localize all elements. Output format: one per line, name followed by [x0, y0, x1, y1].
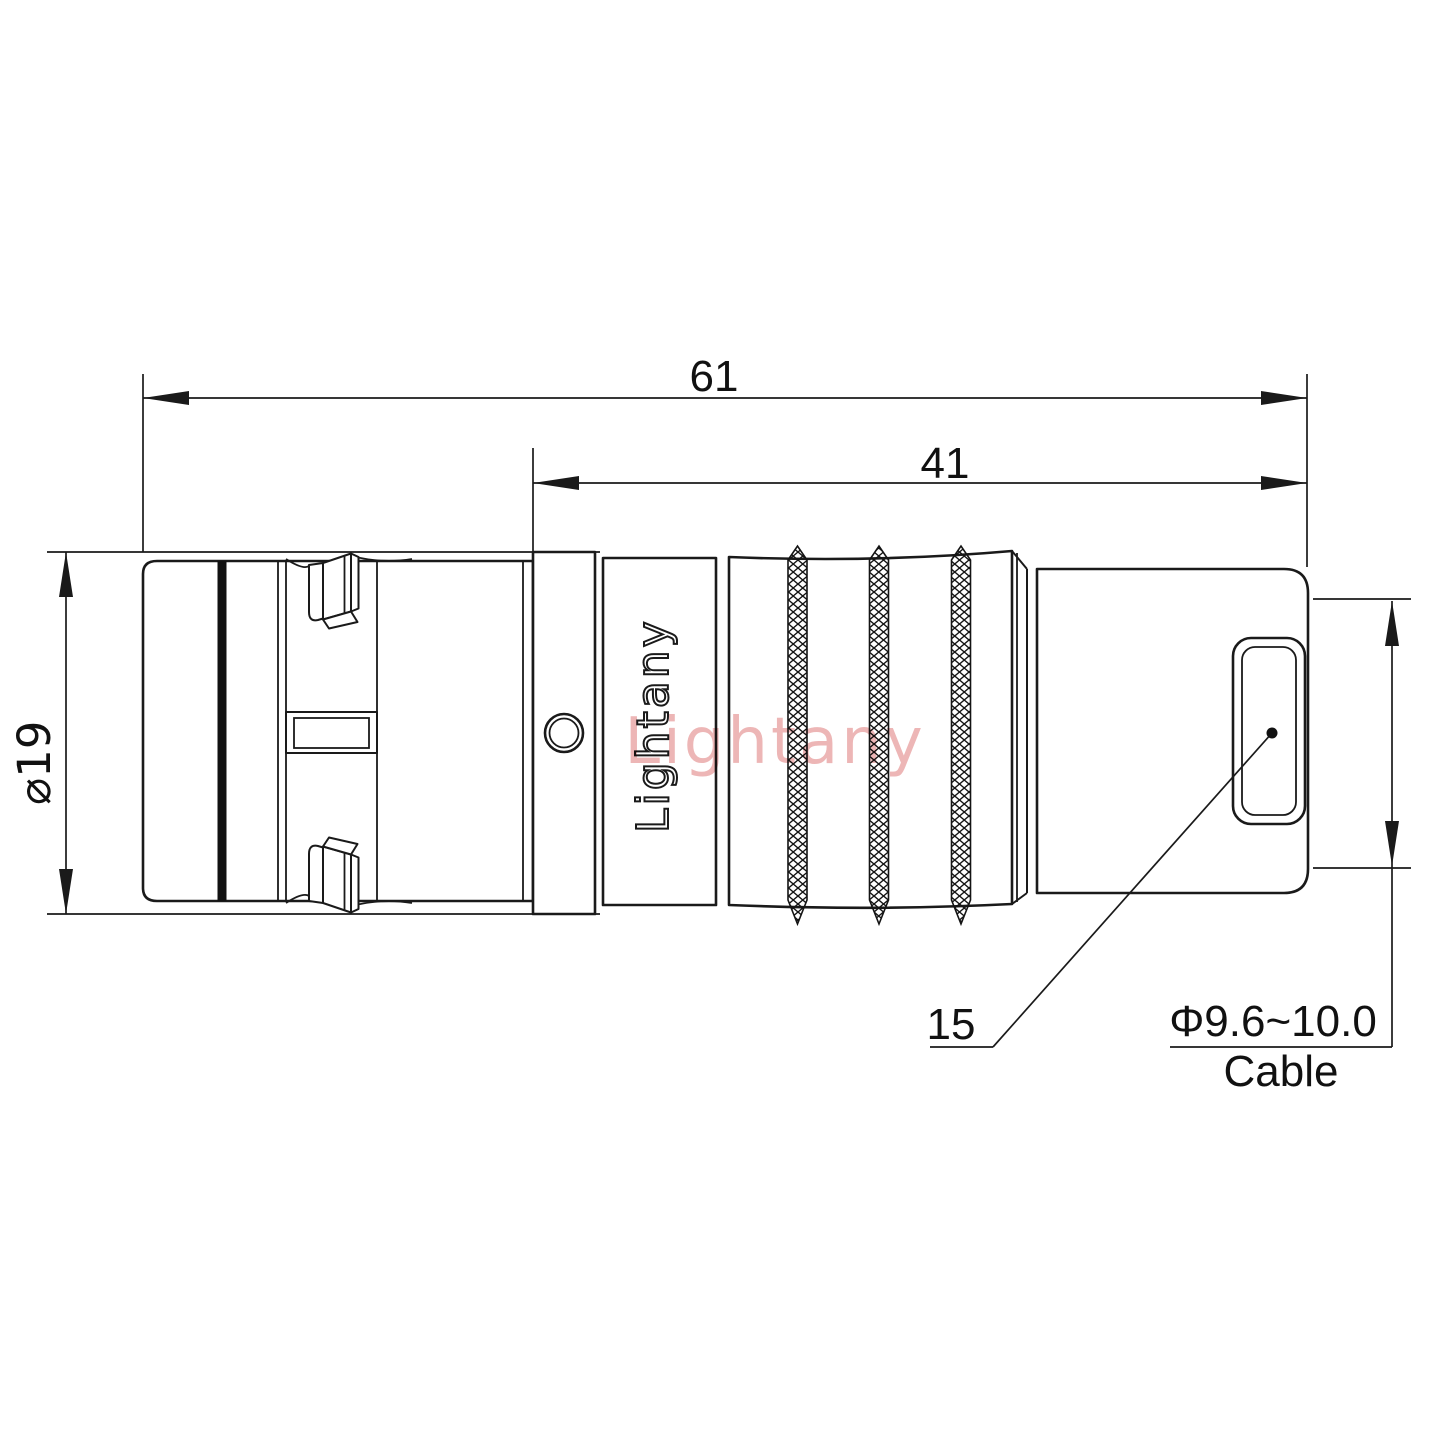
extension-lines-61 — [143, 374, 1307, 567]
latch-claw-top — [309, 554, 359, 629]
locating-hole — [545, 714, 583, 752]
arrowhead-top — [59, 552, 73, 597]
dimension-value-41: 41 — [921, 439, 970, 488]
arrowhead-right — [1261, 391, 1307, 405]
leader-value-15: 15 — [927, 1000, 976, 1049]
boot-shoulder — [1012, 551, 1027, 904]
arrowhead-bottom — [59, 869, 73, 914]
watermark-text: Lightany — [624, 705, 925, 779]
connector-drawing: Lightany Lightany 61 41 — [0, 0, 1440, 1440]
arrowhead-bottom — [1385, 821, 1399, 866]
cable-label: Cable — [1224, 1047, 1339, 1096]
arrowhead-right — [1261, 476, 1307, 490]
arrowhead-left — [143, 391, 189, 405]
dimension-overall-length: 61 — [143, 352, 1307, 567]
boot-collar — [1027, 569, 1037, 893]
arrowhead-left — [533, 476, 579, 490]
knurl-band — [952, 546, 971, 924]
technical-drawing-page: Lightany Lightany 61 41 — [0, 0, 1440, 1440]
arrowhead-top — [1385, 601, 1399, 646]
latch-slot — [286, 712, 377, 753]
leader-dot — [1267, 728, 1278, 739]
latch-claw-bottom — [309, 838, 359, 913]
cable-diameter-range: Φ9.6~10.0 — [1169, 997, 1377, 1046]
dimension-rear-length: 41 — [533, 439, 1307, 552]
dimension-value-61: 61 — [690, 352, 739, 401]
dimension-value-dia19: ⌀19 — [8, 721, 61, 805]
anti-rotation-band — [218, 561, 227, 901]
